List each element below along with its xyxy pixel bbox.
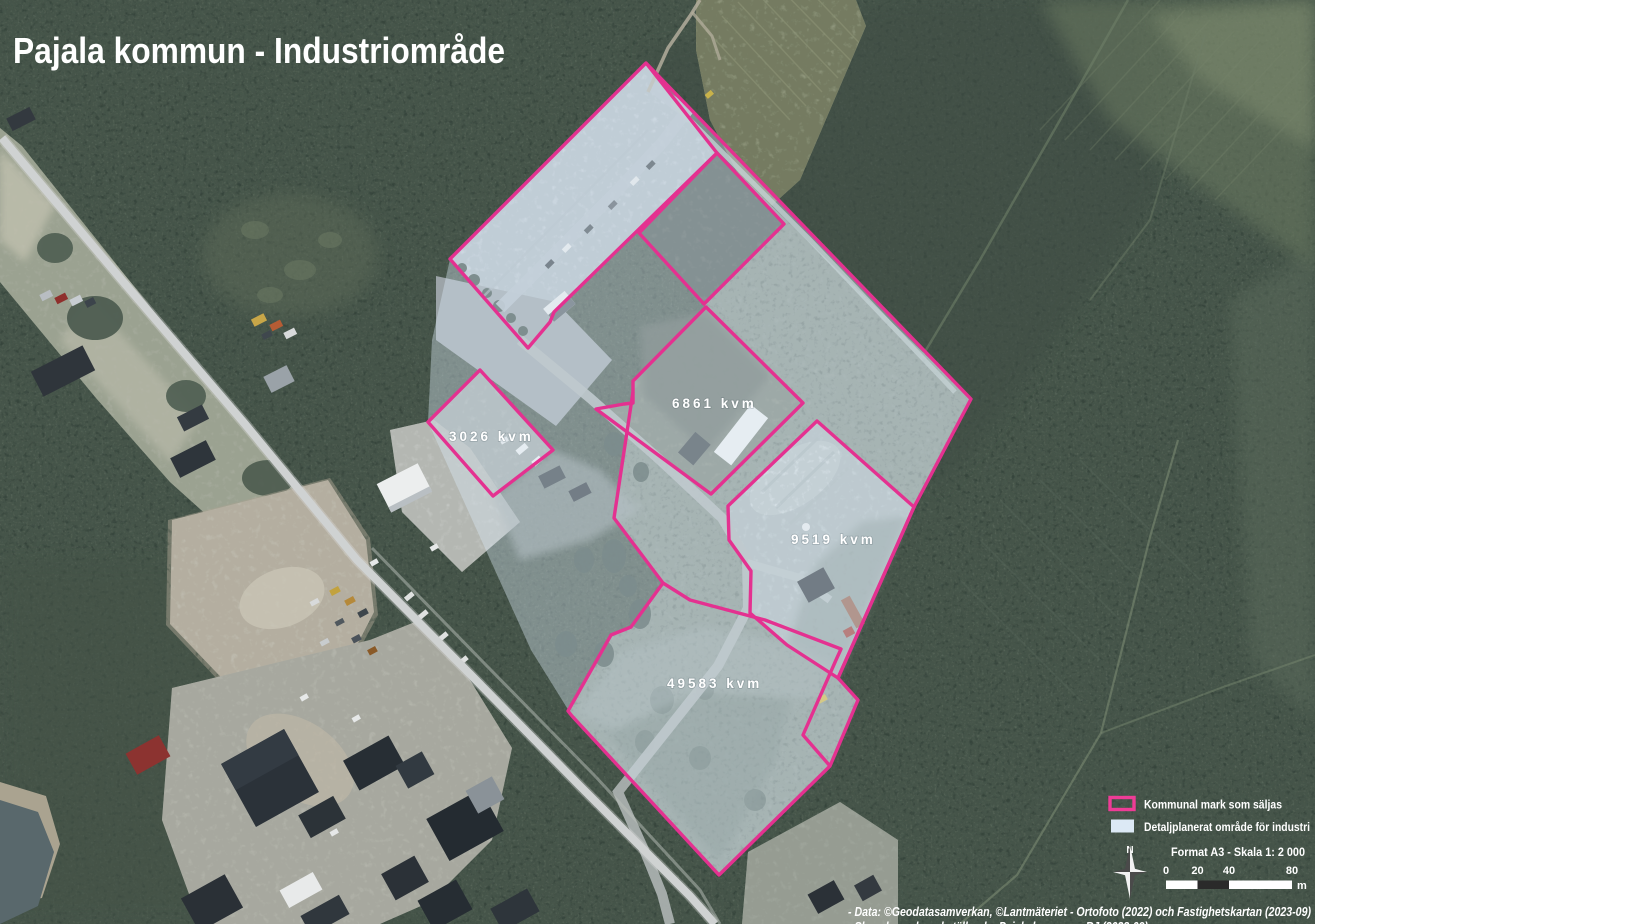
- svg-text:3026 kvm: 3026 kvm: [449, 429, 534, 444]
- svg-text:Pajala kommun - Industriområde: Pajala kommun - Industriområde: [13, 30, 505, 71]
- svg-text:20: 20: [1191, 865, 1203, 877]
- svg-text:49583 kvm: 49583 kvm: [667, 676, 762, 691]
- svg-text:80: 80: [1286, 865, 1298, 877]
- svg-text:Format A3 - Skala 1: 2 000: Format A3 - Skala 1: 2 000: [1171, 845, 1305, 859]
- svg-text:9519 kvm: 9519 kvm: [791, 532, 876, 547]
- svg-text:Detaljplanerat område för indu: Detaljplanerat område för industri: [1144, 822, 1310, 834]
- svg-text:0: 0: [1163, 865, 1169, 877]
- svg-text:6861 kvm: 6861 kvm: [672, 396, 757, 411]
- svg-text:m: m: [1297, 880, 1307, 892]
- svg-text:40: 40: [1223, 865, 1235, 877]
- svg-text:Kommunal mark som säljas: Kommunal mark som säljas: [1144, 800, 1282, 812]
- svg-text:- Data: ©Geodatasamverkan, ©La: - Data: ©Geodatasamverkan, ©Lantmäteriet…: [848, 904, 1311, 919]
- svg-text:- Skapelse och verkställande:: - Skapelse och verkställande: Pajala kom…: [848, 919, 1148, 924]
